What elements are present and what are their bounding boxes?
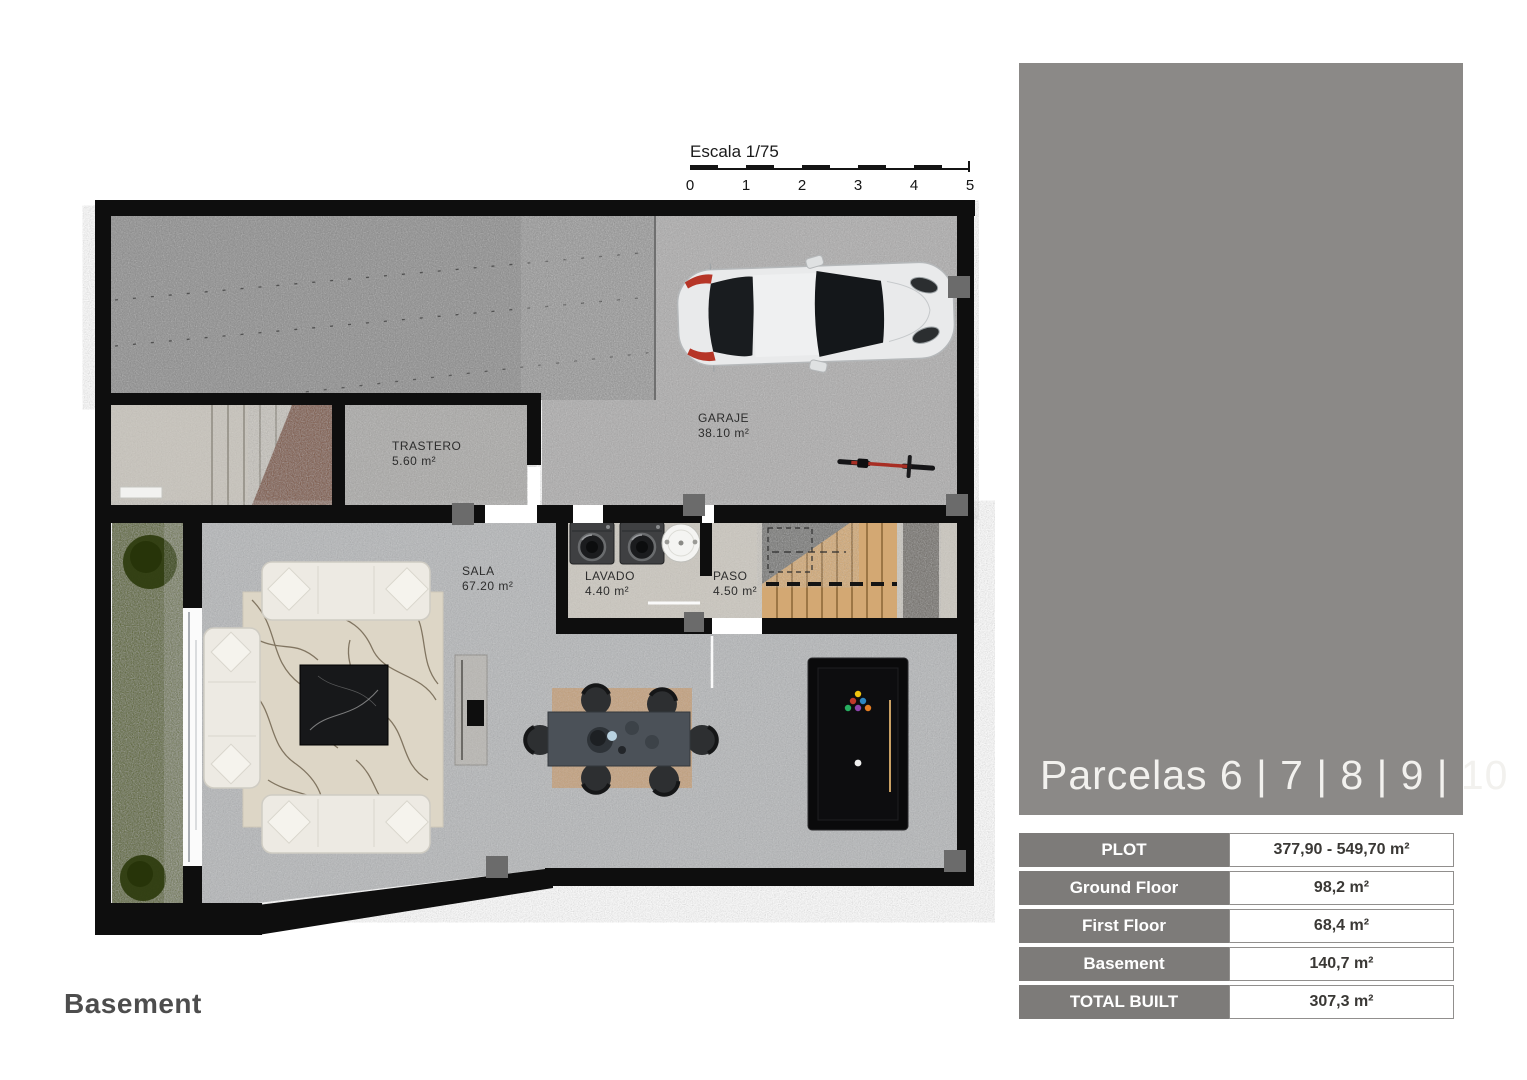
garden-strip — [112, 520, 183, 906]
room-area: 4.40 m² — [585, 584, 629, 598]
scale-tick: 2 — [798, 177, 806, 194]
row-value: 98,2 m² — [1229, 871, 1454, 905]
room-area: 4.50 m² — [713, 584, 757, 598]
tv-screen — [467, 700, 484, 726]
basement-floor-plan: TRASTERO 5.60 m² GARAJE 38.10 m² SALA 67… — [0, 0, 1000, 1080]
scale-tick: 1 — [742, 177, 750, 194]
scale-bar: Escala 1/75 0 1 2 3 4 5 — [686, 142, 974, 194]
scale-tick: 0 — [686, 177, 694, 194]
scale-ticks: 0 1 2 3 4 5 — [686, 177, 974, 194]
table-row: First Floor 68,4 m² — [1019, 909, 1454, 943]
dining-table-set — [525, 685, 717, 799]
room-label: PASO — [713, 569, 747, 583]
table-row: Basement 140,7 m² — [1019, 947, 1454, 981]
room-area: 38.10 m² — [698, 426, 749, 440]
row-label: TOTAL BUILT — [1019, 985, 1229, 1019]
row-label: Ground Floor — [1019, 871, 1229, 905]
window-wall — [183, 608, 202, 866]
car-top-view — [676, 250, 956, 378]
table-row: PLOT 377,90 - 549,70 m² — [1019, 833, 1454, 867]
row-label: PLOT — [1019, 833, 1229, 867]
parcelas-title: Parcelas 6 | 7 | 8 | 9 | 10 — [1040, 752, 1508, 799]
row-label: Basement — [1019, 947, 1229, 981]
row-value: 307,3 m² — [1229, 985, 1454, 1019]
tv-unit — [455, 655, 487, 765]
row-label: First Floor — [1019, 909, 1229, 943]
dining-chair — [581, 685, 611, 715]
room-area: 67.20 m² — [462, 579, 513, 593]
washing-machine — [570, 522, 614, 564]
table-row: Ground Floor 98,2 m² — [1019, 871, 1454, 905]
dining-chair — [687, 725, 717, 755]
room-label: TRASTERO — [392, 439, 461, 453]
bush — [127, 861, 153, 887]
scale-label: Escala 1/75 — [690, 142, 779, 161]
page: TRASTERO 5.60 m² GARAJE 38.10 m² SALA 67… — [0, 0, 1527, 1080]
coffee-table — [300, 665, 388, 745]
driveway-ramp — [110, 215, 655, 400]
entry-courtyard — [110, 400, 332, 505]
floor-caption: Basement — [64, 988, 202, 1020]
room-label: SALA — [462, 564, 495, 578]
bush — [130, 541, 162, 573]
sofa — [204, 628, 260, 788]
spec-table: PLOT 377,90 - 549,70 m² Ground Floor 98,… — [1019, 833, 1454, 1019]
sofa — [262, 562, 430, 620]
row-value: 68,4 m² — [1229, 909, 1454, 943]
gravel-bed — [903, 520, 939, 618]
laundry-sink — [662, 524, 700, 562]
room-label: LAVADO — [585, 569, 635, 583]
parcelas-panel: Parcelas 6 | 7 | 8 | 9 | 10 — [1019, 63, 1463, 815]
entry-bench — [120, 487, 162, 498]
scale-tick: 4 — [910, 177, 918, 194]
dining-chair — [581, 763, 611, 793]
room-label: GARAJE — [698, 411, 749, 425]
row-value: 140,7 m² — [1229, 947, 1454, 981]
sofa — [262, 795, 430, 853]
row-value: 377,90 - 549,70 m² — [1229, 833, 1454, 867]
dining-table — [548, 712, 690, 766]
table-row: TOTAL BUILT 307,3 m² — [1019, 985, 1454, 1019]
staircase — [762, 520, 939, 618]
scale-tick: 3 — [854, 177, 862, 194]
pool-table — [808, 658, 908, 830]
washing-machine — [620, 522, 664, 564]
scale-tick: 5 — [966, 177, 974, 194]
room-area: 5.60 m² — [392, 454, 436, 468]
